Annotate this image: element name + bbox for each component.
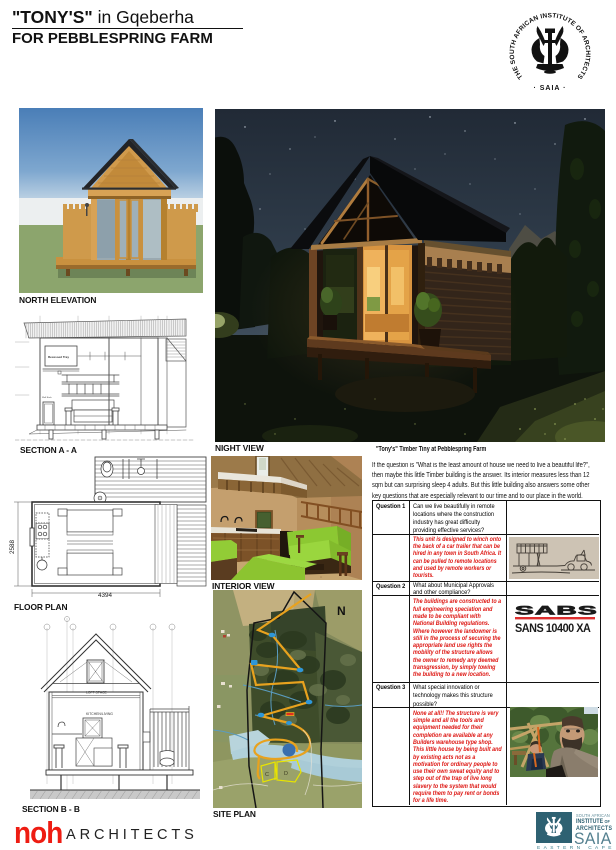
svg-text:4394: 4394 [98,592,113,599]
svg-text:LOFT SPACE: LOFT SPACE [86,691,108,695]
svg-text:2588: 2588 [9,539,16,554]
svg-text:C: C [265,772,269,778]
svg-text:Wall Rack: Wall Rack [42,397,53,399]
svg-text:D: D [284,771,288,777]
svg-text:· SAIA ·: · SAIA · [533,85,566,92]
svg-text:KITCHEN/LIVING: KITCHEN/LIVING [86,712,113,716]
svg-text:SABS: SABS [515,604,598,618]
svg-text:N: N [337,604,346,618]
svg-text:SANS 10400 XA: SANS 10400 XA [515,623,591,635]
svg-text:Recessed Tray: Recessed Tray [48,355,69,359]
